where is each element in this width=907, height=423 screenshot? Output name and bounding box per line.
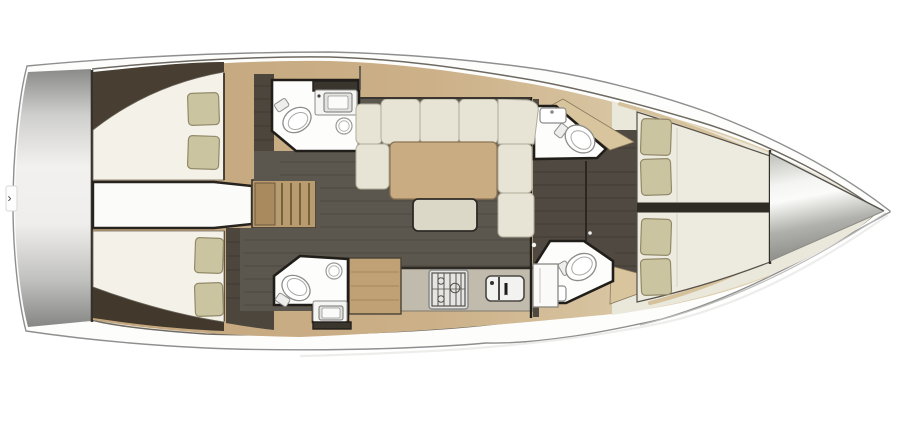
svg-text:›: › bbox=[8, 191, 12, 205]
